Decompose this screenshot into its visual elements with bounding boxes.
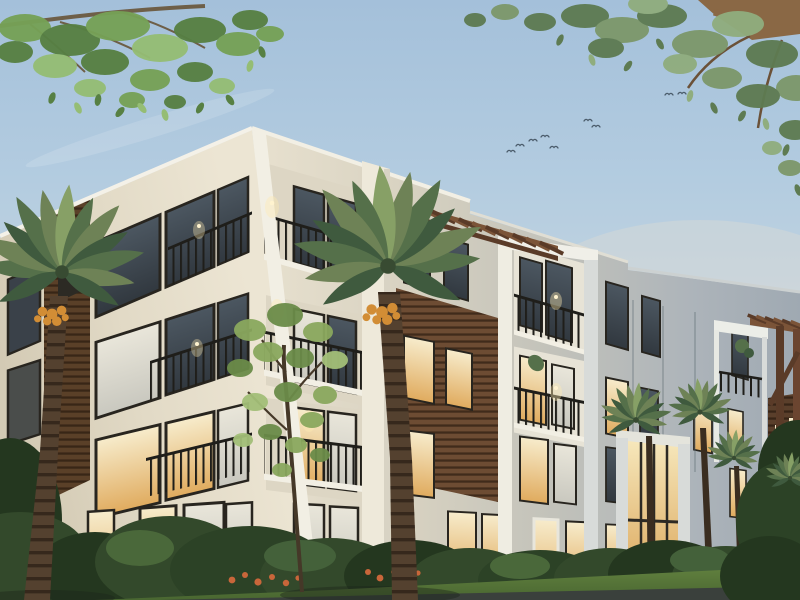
frame-column bbox=[498, 246, 512, 584]
window-lit-pale bbox=[554, 444, 576, 505]
frame-column-shaded bbox=[584, 260, 598, 582]
sconce-light bbox=[265, 196, 279, 218]
window-dark bbox=[8, 360, 40, 444]
window-lit-warm bbox=[520, 436, 548, 503]
balcony-plant bbox=[744, 348, 754, 358]
sconce-light bbox=[191, 339, 203, 357]
sconce-light bbox=[193, 221, 205, 239]
window-dark bbox=[642, 296, 660, 357]
window-dark bbox=[606, 282, 628, 350]
sconce-light bbox=[550, 292, 562, 310]
sconce-light bbox=[550, 383, 562, 401]
architectural-rendering bbox=[0, 0, 800, 600]
bush-highlight bbox=[490, 553, 550, 579]
window-lit-warm bbox=[404, 336, 434, 404]
bush-highlight bbox=[106, 530, 174, 566]
window-lit-warm bbox=[446, 348, 472, 409]
